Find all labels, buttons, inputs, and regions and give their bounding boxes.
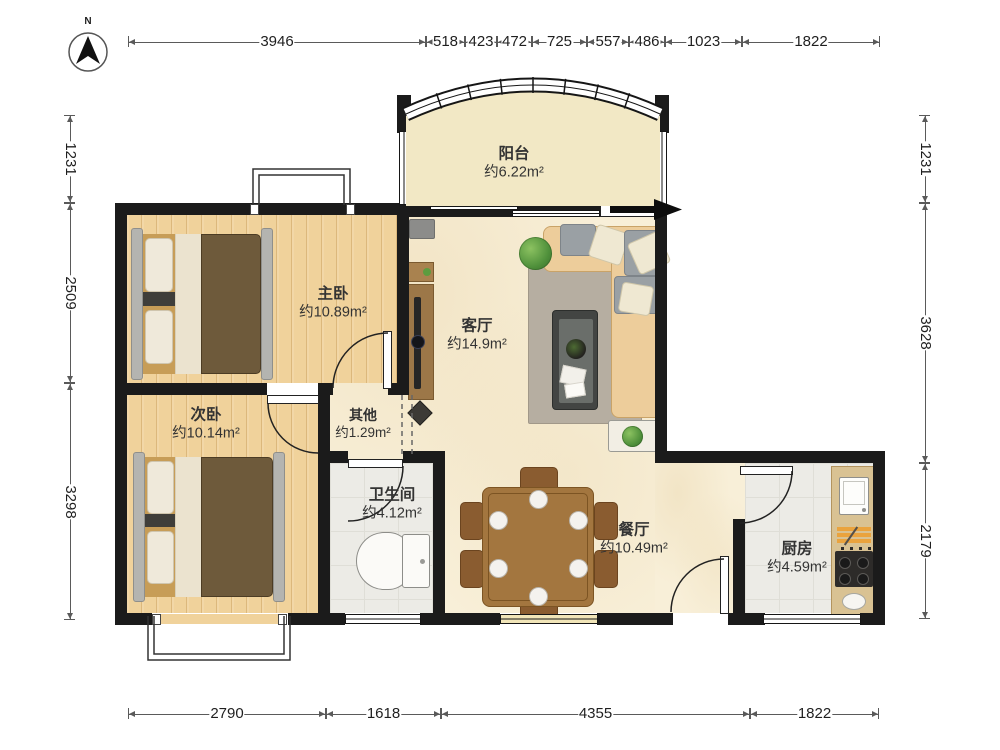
dimension-bottom-3: 1822 (750, 705, 879, 723)
wall-top-master (115, 203, 409, 215)
toilet-button (420, 559, 425, 564)
room-area: 约14.9m² (447, 336, 507, 354)
plate (489, 559, 508, 578)
dining-chair (460, 502, 484, 540)
table-bowl (566, 339, 586, 359)
wall-bottom (728, 613, 765, 625)
room-label-balcony: 阳台 约6.22m² (484, 144, 544, 182)
wall-left (115, 203, 127, 625)
wall-living-right (655, 203, 667, 463)
entry-door-leaf (720, 556, 729, 614)
bed-duvet (201, 457, 273, 597)
balcony-arch-band-outer (406, 85, 660, 114)
sink-detail (843, 481, 865, 505)
room-area: 约10.49m² (600, 540, 668, 558)
wall-mid-horizontal (115, 383, 267, 395)
plate (569, 559, 588, 578)
room-label-master-bedroom: 主卧 约10.89m² (299, 284, 367, 322)
toilet-tank (402, 534, 430, 588)
room-area: 约6.22m² (484, 164, 544, 182)
wall-kitchen-left (733, 519, 745, 615)
dimension-right-1: 3628 (916, 203, 934, 463)
dimension-right-2: 2179 (916, 463, 934, 619)
kitchen-sink (839, 477, 869, 515)
bay-window-break (278, 614, 287, 625)
north-compass-icon: N (69, 16, 107, 71)
room-name: 厨房 (781, 539, 812, 558)
dimension-top-8: 1822 (742, 33, 880, 51)
bathroom-door-leaf (348, 459, 403, 468)
bed-headboard (133, 452, 145, 602)
balcony-arch-segments (436, 77, 629, 108)
stove-knobs (841, 547, 871, 550)
bed-sheet-fold (175, 234, 201, 374)
dimension-value: 2790 (209, 706, 244, 722)
second-door-leaf (267, 395, 319, 404)
bay-window-break (250, 204, 259, 215)
dimension-value: 423 (467, 34, 494, 50)
kitchen-dish (842, 593, 866, 610)
dining-window (500, 614, 598, 624)
room-label-second-bedroom: 次卧 约10.14m² (172, 405, 240, 443)
wall-bottom (597, 613, 673, 625)
balcony-arch-band (406, 85, 660, 114)
room-label-kitchen: 厨房 约4.59m² (767, 539, 827, 577)
shoe-cabinet (409, 219, 435, 239)
dimension-top-7: 1023 (665, 33, 742, 51)
bed-pillow (145, 238, 173, 292)
bed-pillow-gap (143, 292, 175, 306)
room-area: 约10.14m² (172, 425, 240, 443)
dimension-value: 486 (633, 34, 660, 50)
deco-cabinet (408, 262, 434, 282)
coffee-table (552, 310, 598, 410)
sofa-cushion (618, 281, 655, 316)
room-area: 约4.59m² (767, 559, 827, 577)
room-name: 次卧 (190, 405, 221, 424)
bed-pillow-gap (145, 514, 175, 527)
dimension-value: 3628 (917, 315, 933, 350)
dimension-value: 557 (594, 34, 621, 50)
balcony-arch-glassline (406, 85, 660, 114)
dimension-value: 472 (501, 34, 528, 50)
dimension-top-3: 472 (497, 33, 532, 51)
plate (529, 587, 548, 606)
dining-table-inner (488, 493, 588, 601)
kitchen-window (763, 614, 861, 624)
plant-side-table (622, 426, 643, 447)
wall-second-right (318, 395, 330, 613)
dining-room-floor (655, 463, 745, 613)
wall-master-right (397, 215, 409, 395)
bed-footboard (273, 452, 285, 602)
dimension-top-5: 557 (587, 33, 629, 51)
master-door-leaf (383, 331, 392, 389)
bed-pillow (147, 461, 174, 514)
wall-bathroom-right (433, 463, 445, 613)
balcony-side-window (657, 131, 667, 205)
bed-pillow (145, 310, 173, 364)
burner (839, 557, 851, 569)
dimension-value: 1822 (797, 706, 832, 722)
balcony-side-window (399, 131, 409, 205)
kitchen-counter (831, 466, 875, 615)
room-name: 餐厅 (618, 520, 649, 539)
entry-marker-slab (600, 202, 658, 217)
balcony-sliding-door-pane (512, 210, 600, 217)
room-label-dining-room: 餐厅 约10.49m² (600, 520, 668, 558)
plate (529, 490, 548, 509)
wall-kitchen-right (873, 451, 885, 625)
dimension-top-0: 3946 (128, 33, 426, 51)
dimension-left-2: 3298 (61, 383, 79, 620)
room-label-other: 其他 约1.29m² (335, 407, 391, 441)
room-label-bathroom: 卫生间 约4.12m² (362, 485, 422, 523)
bathroom-window (345, 614, 421, 624)
floorplan-canvas: N 阳台 约6.22m² 主卧 约10.89m² 客厅 约14.9m² 次卧 约… (0, 0, 1000, 750)
dimension-value: 518 (432, 34, 459, 50)
cutting-board (837, 533, 871, 537)
wall-bathroom-top (318, 451, 348, 463)
room-area: 约10.89m² (299, 304, 367, 322)
dimension-top-6: 486 (629, 33, 665, 51)
bed-pillow (147, 531, 174, 584)
wall-balcony-post-right (655, 95, 669, 133)
sink-dot (862, 508, 866, 512)
svg-text:N: N (84, 16, 91, 27)
dimension-bottom-2: 4355 (441, 705, 750, 723)
wall-mid-horizontal (318, 383, 333, 395)
kitchen-door-leaf (740, 466, 793, 475)
dimension-top-4: 725 (532, 33, 587, 51)
dimension-value: 1822 (793, 34, 828, 50)
plate (489, 511, 508, 530)
stove (835, 551, 873, 587)
bay-window-floor-band (161, 614, 278, 624)
dining-chair (460, 550, 484, 588)
balcony-sliding-door-pane (430, 203, 518, 210)
dimension-value: 1231 (917, 141, 933, 176)
room-name: 客厅 (461, 316, 492, 335)
master-bed (131, 228, 273, 380)
plant-balcony (407, 131, 445, 169)
dimension-value: 4355 (578, 706, 613, 722)
dimension-left-1: 2509 (61, 203, 79, 383)
dimension-top-2: 423 (465, 33, 497, 51)
wall-bottom (420, 613, 500, 625)
cutting-board (837, 539, 871, 543)
second-bed (133, 452, 285, 602)
room-name: 卫生间 (369, 485, 416, 504)
burner (857, 557, 869, 569)
burner (839, 573, 851, 585)
deco-plant-dot (423, 268, 431, 276)
wall-bottom (288, 613, 345, 625)
dimension-value: 725 (546, 34, 573, 50)
burner (857, 573, 869, 585)
dimension-value: 3946 (259, 34, 294, 50)
bed-headboard (131, 228, 143, 380)
room-area: 约4.12m² (362, 505, 422, 523)
master-bay-window (253, 169, 350, 205)
dimension-value: 1231 (62, 141, 78, 176)
room-label-living-room: 客厅 约14.9m² (447, 316, 507, 354)
plant-living-room (519, 237, 552, 270)
room-area: 约1.29m² (335, 424, 391, 441)
dimension-top-1: 518 (426, 33, 465, 51)
room-name: 阳台 (498, 144, 529, 163)
tv-knob (411, 335, 425, 349)
dimension-left-0: 1231 (61, 115, 79, 203)
bed-sheet-fold (175, 457, 201, 597)
plate (569, 511, 588, 530)
bed-footboard (261, 228, 273, 380)
dimension-value: 1023 (686, 34, 721, 50)
dimension-value: 1618 (366, 706, 401, 722)
dimension-value: 3298 (62, 484, 78, 519)
wall-balcony-post-left (397, 95, 411, 133)
dimension-value: 2509 (62, 275, 78, 310)
wall-bottom (115, 613, 152, 625)
bed-duvet (201, 234, 261, 374)
dimension-bottom-0: 2790 (128, 705, 326, 723)
wall-kitchen-top (655, 451, 885, 463)
wall-bottom (860, 613, 885, 625)
tv-cabinet (408, 284, 434, 400)
dimension-bottom-1: 1618 (326, 705, 441, 723)
dimension-right-0: 1231 (916, 115, 934, 203)
room-name: 其他 (349, 407, 377, 425)
room-name: 主卧 (317, 284, 348, 303)
wall-bathroom-top (403, 451, 445, 463)
bay-window-break (152, 614, 161, 625)
bay-window-break (346, 204, 355, 215)
dimension-value: 2179 (917, 523, 933, 558)
